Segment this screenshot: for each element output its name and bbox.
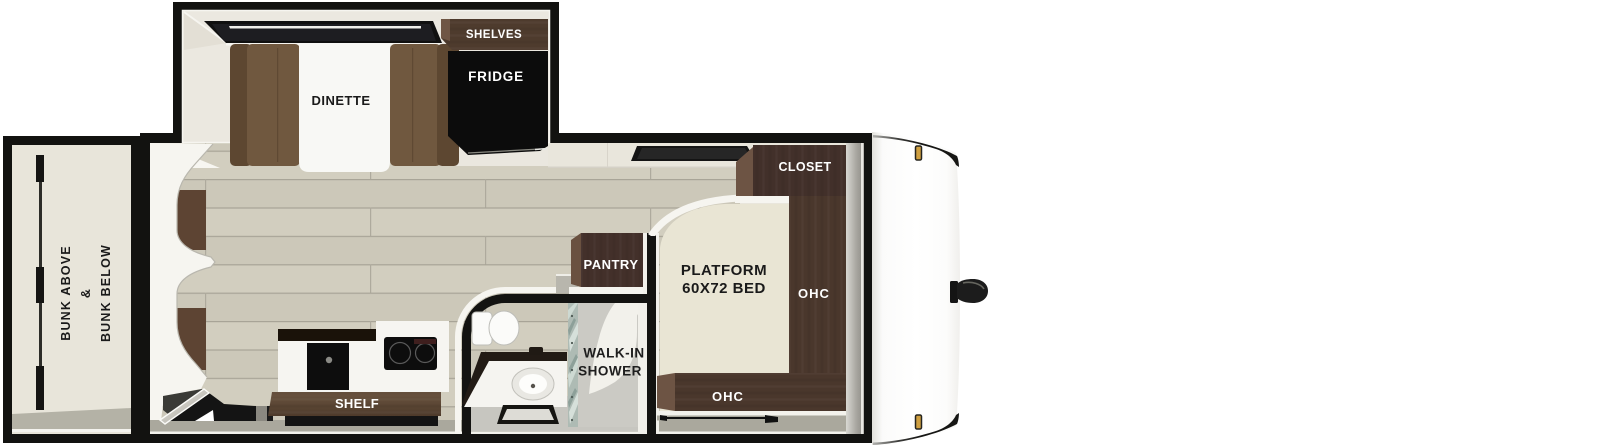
svg-text:SHOWER: SHOWER — [578, 364, 642, 379]
svg-text:BUNK ABOVE: BUNK ABOVE — [59, 245, 73, 341]
svg-text:DINETTE: DINETTE — [311, 93, 370, 108]
svg-text:BUNK BELOW: BUNK BELOW — [99, 244, 113, 342]
svg-text:OHC: OHC — [712, 389, 744, 404]
svg-text:SHELF: SHELF — [335, 396, 379, 411]
svg-text:WALK-IN: WALK-IN — [583, 346, 644, 361]
svg-text:PLATFORM: PLATFORM — [681, 262, 767, 279]
svg-text:SHELVES: SHELVES — [466, 29, 522, 41]
svg-text:OHC: OHC — [798, 286, 830, 301]
svg-text:60X72 BED: 60X72 BED — [682, 280, 766, 297]
svg-text:&: & — [79, 288, 93, 298]
svg-text:PANTRY: PANTRY — [584, 257, 639, 272]
svg-text:FRIDGE: FRIDGE — [468, 69, 524, 84]
svg-text:CLOSET: CLOSET — [778, 160, 831, 174]
